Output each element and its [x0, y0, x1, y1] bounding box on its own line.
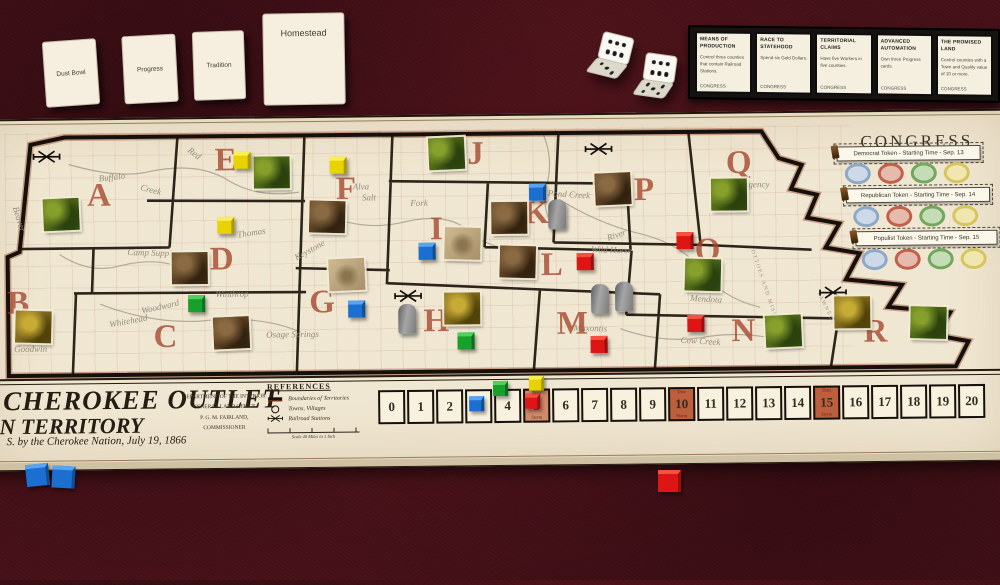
dept-line: DEPARTMENT OF THE INTERIOR [179, 391, 269, 402]
terrain-tile-brown[interactable] [309, 200, 346, 233]
goal-card-territorial-claims[interactable]: TERRITORIAL CLAIMSHave five Workers in f… [815, 33, 872, 96]
congress-oval [878, 163, 904, 184]
terrain-tile-light[interactable] [444, 227, 481, 260]
map-label-osage-springs: Osage Springs [266, 329, 319, 340]
reference-swatch-boundary [267, 397, 283, 401]
congress-oval [919, 205, 945, 226]
terrain-tile-green[interactable] [684, 258, 721, 291]
worker-cube-red[interactable] [676, 232, 693, 249]
congress-oval [886, 206, 912, 227]
railroad-station-icon [393, 289, 423, 303]
die-pip [608, 39, 613, 44]
goal-card-advanced-automation[interactable]: ADVANCED AUTOMATIONOwn three Progress ca… [876, 33, 933, 96]
worker-cube-yellow[interactable] [234, 152, 251, 169]
die-pip [650, 70, 655, 75]
terrain-tile-brown[interactable] [499, 245, 536, 278]
reference-label: Boundaries of Territories [288, 396, 349, 403]
die-pip [657, 71, 662, 76]
die-pip [641, 89, 647, 93]
county-letter-n: N [731, 313, 755, 350]
worker-cube-blue[interactable] [25, 463, 50, 487]
references-title: REFERENCES [267, 381, 365, 391]
worker-cube-blue[interactable] [469, 396, 484, 411]
reference-swatch-railroad [267, 410, 283, 429]
die-pip [651, 59, 656, 64]
track-cell-event-bottom: Storm [525, 415, 548, 420]
dept-line: P. G. M. FAIRLAND, COMMISSIONER [179, 412, 269, 434]
worker-cube-red[interactable] [590, 336, 607, 353]
congress-oval [862, 249, 888, 270]
congress-oval-row [845, 162, 970, 184]
terrain-tile-gold[interactable] [444, 292, 480, 324]
county-letter-q: Q [726, 145, 752, 182]
card-progress[interactable]: Progress [121, 34, 178, 105]
settlement-marker-gray[interactable] [615, 282, 633, 312]
track-cell-16: 16 [842, 385, 869, 419]
die-pip [645, 83, 651, 87]
card-tradition[interactable]: Tradition [192, 30, 246, 101]
settlement-marker-gray[interactable] [398, 304, 416, 334]
goal-card-body: Spend six Gold Dollars. [760, 55, 807, 62]
track-cell-11: 11 [697, 387, 724, 421]
goal-card-title: RACE TO STATEHOOD [760, 37, 807, 51]
track-cell-20: 20 [958, 384, 985, 418]
map-label-fork: Fork [410, 198, 428, 208]
goal-card-footer: CONGRESS [881, 85, 928, 91]
goal-card-footer: CONGRESS [941, 86, 988, 92]
die-pip [615, 41, 620, 46]
terrain-tile-green[interactable] [42, 198, 79, 232]
goal-card-body: Have five Workers in five counties. [820, 56, 867, 70]
settlement-marker-gray[interactable] [548, 199, 566, 229]
congress-row-label: Republican Token - Starting Time - Sep. … [846, 187, 990, 204]
card-label: Progress [137, 65, 163, 73]
congress-oval [911, 162, 937, 183]
goal-card-footer: CONGRESS [700, 83, 747, 89]
die-pip [604, 66, 610, 70]
settlement-marker-gray[interactable] [591, 284, 609, 314]
die-pip [599, 62, 605, 66]
terrain-tile-brown[interactable] [172, 252, 208, 284]
track-cell-7: 7 [581, 388, 608, 422]
track-cell-19: 19 [929, 384, 956, 418]
terrain-tile-green[interactable] [254, 156, 290, 188]
track-cell-1: 1 [407, 390, 434, 424]
worker-cube-red[interactable] [577, 253, 594, 270]
terrain-tile-gold[interactable] [834, 296, 870, 328]
goal-card-body: Own three Progress cards. [881, 56, 928, 70]
track-cell-2: 2 [436, 389, 463, 423]
die-pip [612, 51, 617, 56]
scale-text: Scale 40 Miles to 1 Inch [267, 433, 359, 439]
congress-row-label: Populist Token - Starting Time - Sep. 15 [855, 230, 997, 246]
worker-cube-blue[interactable] [529, 184, 546, 201]
county-letter-c: C [153, 319, 177, 356]
terrain-tile-green[interactable] [428, 137, 465, 171]
track-cell-0: 0 [378, 390, 405, 424]
boundary-swatch [268, 397, 282, 401]
track-cell-12: 12 [726, 386, 753, 420]
reference-label: Railroad Stations [288, 416, 330, 422]
card-homestead[interactable]: Homestead [262, 12, 346, 105]
worker-cube-blue[interactable] [419, 243, 436, 260]
worker-cube-blue[interactable] [348, 300, 365, 317]
railroad-station-icon [583, 142, 613, 156]
worker-cube-yellow[interactable] [330, 157, 347, 174]
county-letter-p: P [634, 172, 655, 209]
goal-card-body: Control counties with a Town and Quality… [941, 57, 988, 78]
die-2[interactable] [640, 52, 678, 100]
reference-item: Railroad Stations [267, 413, 365, 424]
terrain-tile-gold[interactable] [15, 310, 52, 343]
references-legend: REFERENCES Boundaries of TerritoriesTown… [267, 381, 366, 439]
track-cell-6: 6 [552, 388, 579, 422]
goal-card-title: MEANS OF PRODUCTION [700, 36, 747, 50]
track-cell-18: 18 [900, 385, 927, 419]
worker-cube-green[interactable] [457, 332, 474, 349]
congress-oval [928, 248, 954, 269]
goal-card-title: ADVANCED AUTOMATION [881, 38, 928, 52]
congress-oval [895, 249, 921, 270]
goal-card-title: TERRITORIAL CLAIMS [820, 38, 867, 52]
terrain-tile-light[interactable] [328, 258, 365, 292]
goal-card-means-of-production[interactable]: MEANS OF PRODUCTIONControl three countie… [695, 31, 752, 94]
worker-cube-red[interactable] [658, 470, 681, 492]
track-cell-14: 14 [784, 386, 811, 420]
die-pip [664, 72, 669, 77]
goal-card-the-promised-land[interactable]: THE PROMISED LANDControl counties with a… [936, 34, 993, 97]
congress-oval [845, 163, 871, 184]
track-cell-8: 8 [610, 388, 637, 422]
worker-cube-green[interactable] [188, 295, 205, 312]
terrain-tile-brown[interactable] [491, 202, 527, 234]
terrain-tile-green[interactable] [765, 314, 802, 348]
die-pip [658, 60, 663, 65]
goal-card-race-to-statehood[interactable]: RACE TO STATEHOODSpend six Gold Dollars.… [755, 32, 812, 95]
worker-cube-green[interactable] [493, 381, 508, 396]
map-label-camp-supply: Camp Supply [127, 247, 175, 258]
worker-cube-blue[interactable] [51, 465, 75, 488]
table-surface: { "hand_cards": [ {"label":"Dust Bowl","… [0, 0, 1000, 580]
card-label: Homestead [280, 28, 326, 39]
track-cell-event-top: Dust [815, 388, 838, 393]
railroad-icon [267, 414, 284, 425]
county-letter-a: A [87, 178, 111, 215]
congress-oval-row [862, 248, 987, 270]
county-letter-m: M [557, 306, 589, 343]
die-pip [605, 49, 610, 54]
terrain-tile-green[interactable] [711, 178, 747, 210]
die-pip [609, 71, 615, 75]
map-label-winthrop: Winthrop [215, 289, 248, 299]
die-pip [665, 61, 670, 66]
map-label-wild-horse: Wild Horse [591, 244, 632, 255]
track-cell-event-bottom: Storm [815, 412, 838, 417]
die-pip [621, 42, 626, 47]
map-label-goodwin: Goodwin [14, 344, 47, 354]
worker-cube-yellow[interactable] [529, 376, 544, 391]
track-cell-17: 17 [871, 385, 898, 419]
goal-card-tray: MEANS OF PRODUCTIONControl three countie… [688, 25, 1000, 103]
reference-label: Towns, Villages [288, 406, 325, 412]
track-cell-13: 13 [755, 386, 782, 420]
worker-cube-red[interactable] [525, 394, 540, 409]
track-cell-15: 15DustStorm [813, 385, 840, 419]
track-cell-9: 9 [639, 387, 666, 421]
congress-oval-row [853, 205, 978, 227]
map-label-mendota: Mendota [690, 293, 723, 305]
goal-card-body: Control three counties that contain Rail… [700, 54, 747, 75]
die-pip [660, 85, 666, 89]
congress-oval [961, 248, 987, 269]
terrain-tile-brown[interactable] [594, 172, 631, 206]
map-label-salt: Salt [362, 192, 376, 202]
track-cell-event-top: Dust [670, 390, 693, 395]
track-cell-event-bottom: Storm [670, 413, 693, 418]
congress-oval [853, 206, 879, 227]
congress-oval [952, 205, 978, 226]
congress-row-label: Democrat Token - Starting Time - Sep. 13 [837, 145, 981, 162]
terrain-tile-green[interactable] [910, 306, 947, 339]
department-block: DEPARTMENT OF THE INTERIOR GENERAL LAND … [179, 391, 269, 434]
worker-cube-red[interactable] [687, 315, 704, 332]
terrain-tile-brown[interactable] [213, 316, 250, 350]
county-letter-l: L [541, 247, 563, 284]
die-pip [619, 52, 624, 57]
die-pip [650, 87, 656, 91]
die-pip [655, 92, 661, 96]
county-letter-j: J [467, 136, 484, 173]
card-label: Dust Bowl [56, 68, 86, 77]
board-title-line3: S. by the Cherokee Nation, July 19, 1866 [7, 434, 187, 448]
goal-card-title: THE PROMISED LAND [941, 39, 988, 53]
railroad-station-icon [32, 150, 62, 164]
congress-oval [944, 162, 970, 183]
track-cell-10: 10DustStorm [668, 387, 695, 421]
card-label: Tradition [206, 62, 231, 70]
county-letter-d: D [210, 241, 234, 278]
card-dust-bowl[interactable]: Dust Bowl [42, 38, 100, 108]
goal-card-footer: CONGRESS [820, 85, 867, 91]
goal-card-footer: CONGRESS [760, 84, 807, 90]
worker-cube-yellow[interactable] [217, 217, 234, 234]
